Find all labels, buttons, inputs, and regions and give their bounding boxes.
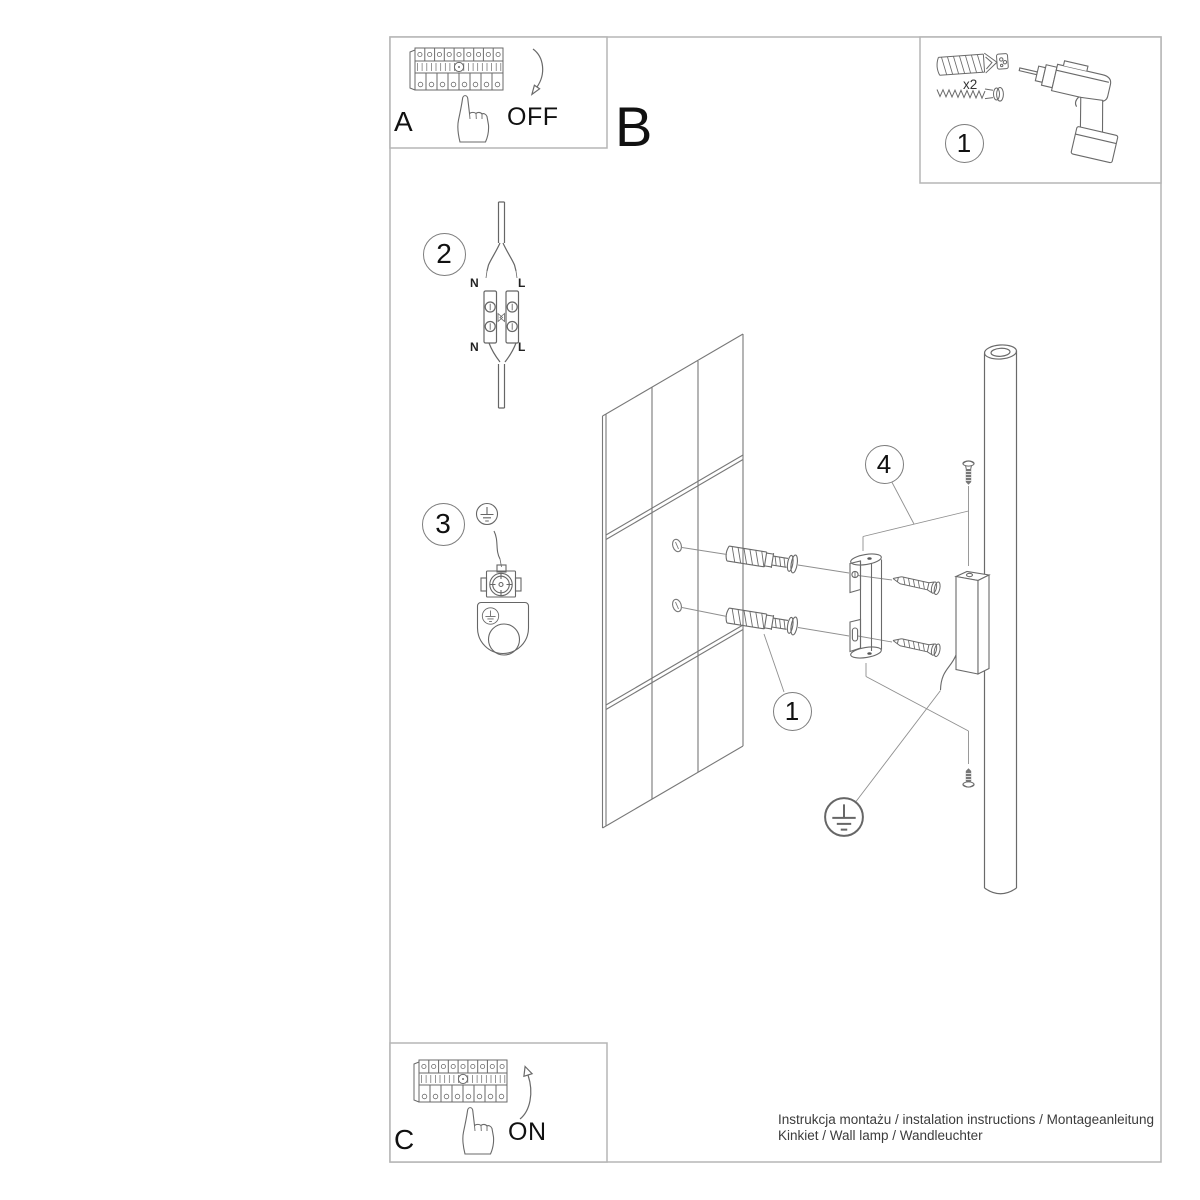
badge-fixing-screw: 4 xyxy=(865,445,904,484)
badge-kit: 1 xyxy=(945,124,984,163)
top-fixing-screw xyxy=(963,461,974,485)
bracket-screws xyxy=(892,572,942,657)
mounting-bracket xyxy=(850,552,882,660)
terminal-label-l-bottom: L xyxy=(518,341,525,353)
instruction-sheet: A B OFF C ON x2 N L N L 1 2 3 1 4 Instru… xyxy=(0,0,1200,1200)
power-on-label: ON xyxy=(508,1119,547,1145)
earth-symbol-icon xyxy=(482,608,498,624)
panel-a-frame xyxy=(390,37,607,148)
terminal-label-l-top: L xyxy=(518,277,525,289)
badge-earth: 3 xyxy=(422,503,465,546)
earth-symbol-icon xyxy=(477,504,498,525)
footer-text: Instrukcja montażu / instalation instruc… xyxy=(778,1112,1154,1144)
panel-c-label: C xyxy=(394,1126,414,1154)
line-art-layer xyxy=(0,0,1200,1200)
page-frame xyxy=(390,37,1161,1162)
panel-b-label: B xyxy=(615,99,652,155)
badge-anchors: 1 xyxy=(773,692,812,731)
terminal-label-n-bottom: N xyxy=(470,341,479,353)
tube-mount-housing xyxy=(941,572,990,691)
power-off-label: OFF xyxy=(507,104,559,130)
earth-connection-illustration xyxy=(477,504,529,656)
bottom-fixing-screw xyxy=(963,768,974,787)
earth-symbol-icon xyxy=(825,798,863,836)
wall-anchor-exploded xyxy=(725,544,799,635)
footer-line-1: Instrukcja montażu / instalation instruc… xyxy=(778,1112,1154,1128)
terminal-block-illustration xyxy=(484,202,519,408)
badge-wiring: 2 xyxy=(423,233,466,276)
earth-wire xyxy=(941,655,957,690)
kit-quantity-label: x2 xyxy=(963,77,977,93)
footer-line-2: Kinkiet / Wall lamp / Wandleuchter xyxy=(778,1128,1154,1144)
terminal-label-n-top: N xyxy=(470,277,479,289)
wall-tiles xyxy=(603,334,744,828)
panel-a-label: A xyxy=(394,108,413,136)
